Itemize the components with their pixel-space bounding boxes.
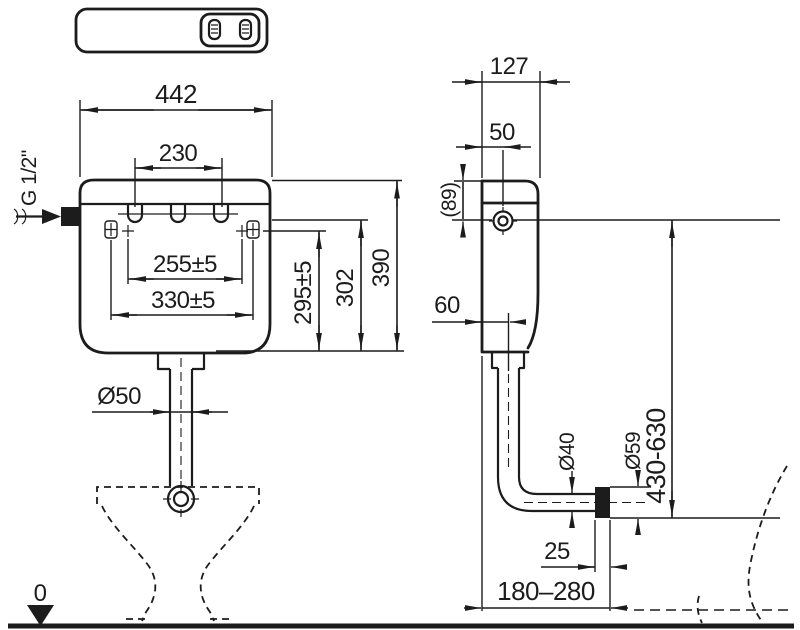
toilet-bowl-outline-side [698,466,787,623]
bowl-inlet-inner-circle [174,492,188,506]
keyhole-slot-right [214,204,228,222]
side-lid [482,181,538,203]
water-inlet-valve [14,207,79,226]
dim-127: 127 [452,53,570,178]
dim-label-wall-distance-range: 180–280 [497,576,595,606]
dim-label-pipe-diameter: Ø40 [556,433,579,471]
dim-label-width-total: 442 [155,79,197,109]
bowl-top-dashed [97,487,259,504]
technical-drawing-page: G 1/2" [0,0,800,630]
side-body [482,181,538,352]
keyhole-slot-center [171,204,185,222]
dim-vertical-front: 295±5 302 390 [216,181,404,352]
dim-label-depth: 127 [490,53,529,80]
side-view: 127 50 (89) 60 [432,53,788,623]
bowl-left-dashed [102,506,155,621]
dim-180-280: 180–280 [464,356,788,611]
dim-label-pipe-center-offset: 60 [434,292,460,319]
datum-level-label: 0 [34,580,47,607]
dim-label-coupling-length: 25 [544,538,570,565]
toilet-bowl-outline-front [97,487,259,621]
dim-label-mount-height: 295±5 [290,261,317,325]
dim-255: 255±5 [128,239,242,284]
dim-label-mount-inner: 255±5 [153,251,217,278]
inlet-flow-arrow [42,209,61,224]
cistern-dimension-drawing: G 1/2" [0,0,800,630]
dim-label-flush-pipe-diameter: Ø50 [97,383,141,410]
mounting-slots [105,204,259,238]
floor-datum: 0 [8,580,794,626]
side-pipe-elbow [498,477,596,511]
inlet-valve-body [61,207,79,226]
bowl-right-dashed [201,506,254,621]
dim-50: 50 [456,119,531,206]
dim-label-total-height: 390 [368,249,395,288]
dim-60: 60 [432,292,525,371]
inlet-target-symbol [489,207,517,235]
dim-label-inlet-thread: G 1/2" [18,150,41,206]
inner-mount-crosses [122,225,248,237]
button-hatching [211,25,249,33]
dim-230: 230 [135,140,222,207]
dim-89: (89) [438,164,492,237]
dim-label-slot-spacing: 230 [159,140,198,167]
datum-triangle [27,605,54,626]
dim-label-mount-outer: 330±5 [151,287,215,314]
dim-label-inlet-depth: (89) [438,182,461,217]
plan-view-lid [76,9,267,52]
dim-430-630: 430-630 [513,220,780,518]
dim-label-inlet-height: 302 [332,269,359,308]
dim-pipe-40: Ø40 [556,433,579,527]
dim-label-inlet-offset: 50 [489,119,515,146]
dim-pipe-50: Ø50 [92,383,228,412]
front-view: G 1/2" [14,79,404,621]
dim-label-outlet-height-range: 430-630 [641,408,671,504]
outlet-coupling [595,487,610,518]
flush-pipe-front [158,353,204,517]
